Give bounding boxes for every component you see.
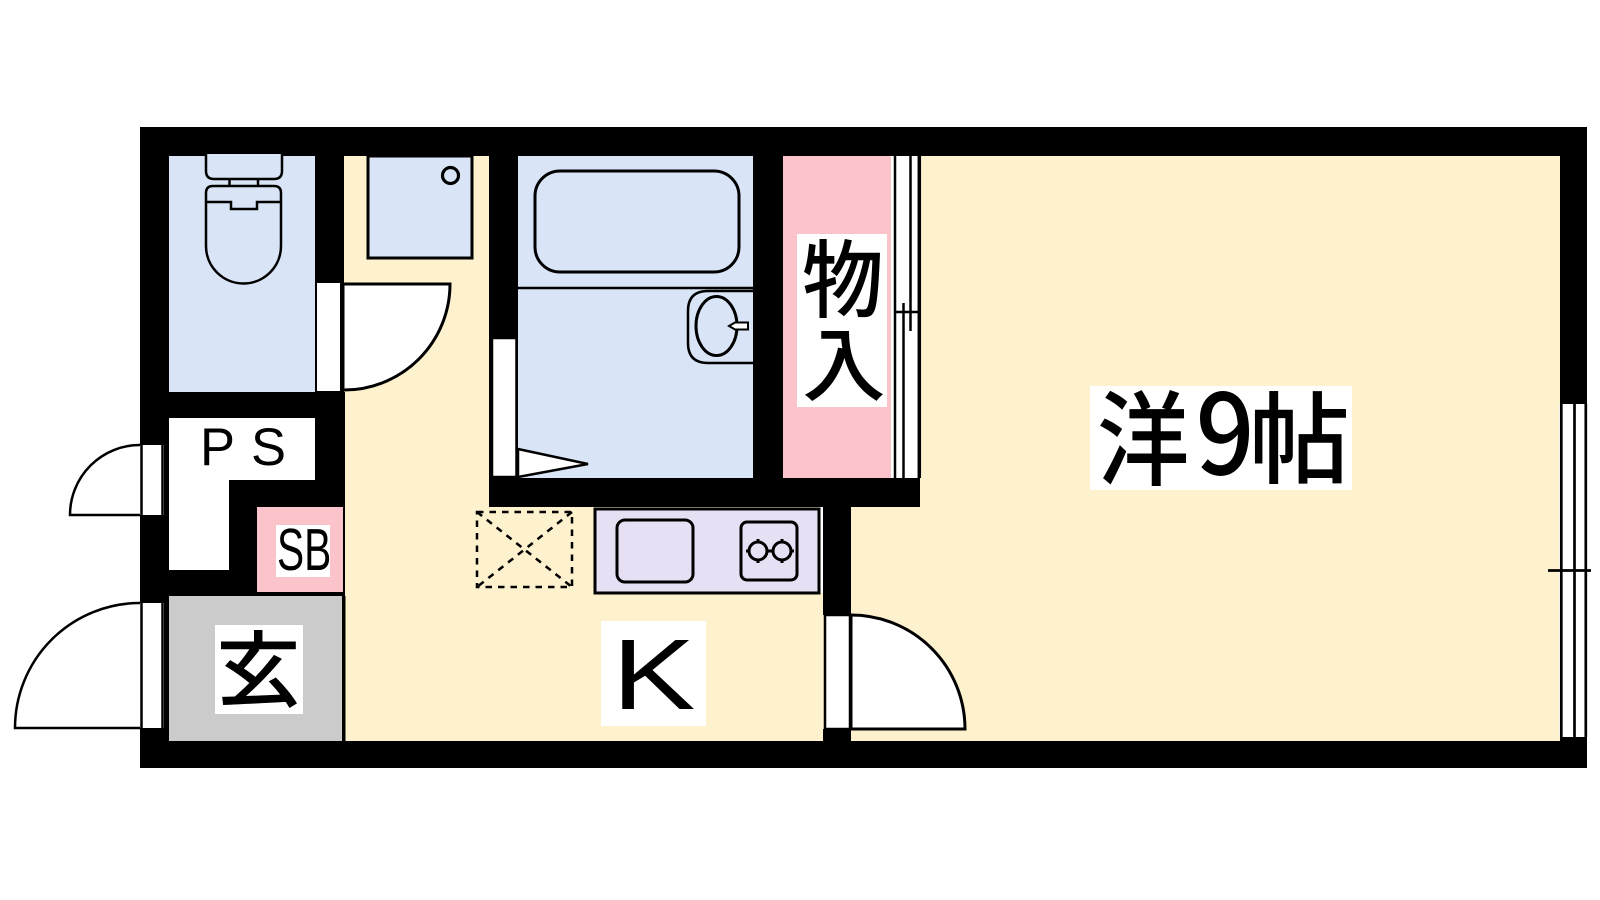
svg-text:SB: SB — [277, 516, 331, 582]
svg-text:P: P — [200, 418, 235, 477]
svg-text:S: S — [251, 418, 286, 477]
svg-text:K: K — [612, 619, 695, 730]
